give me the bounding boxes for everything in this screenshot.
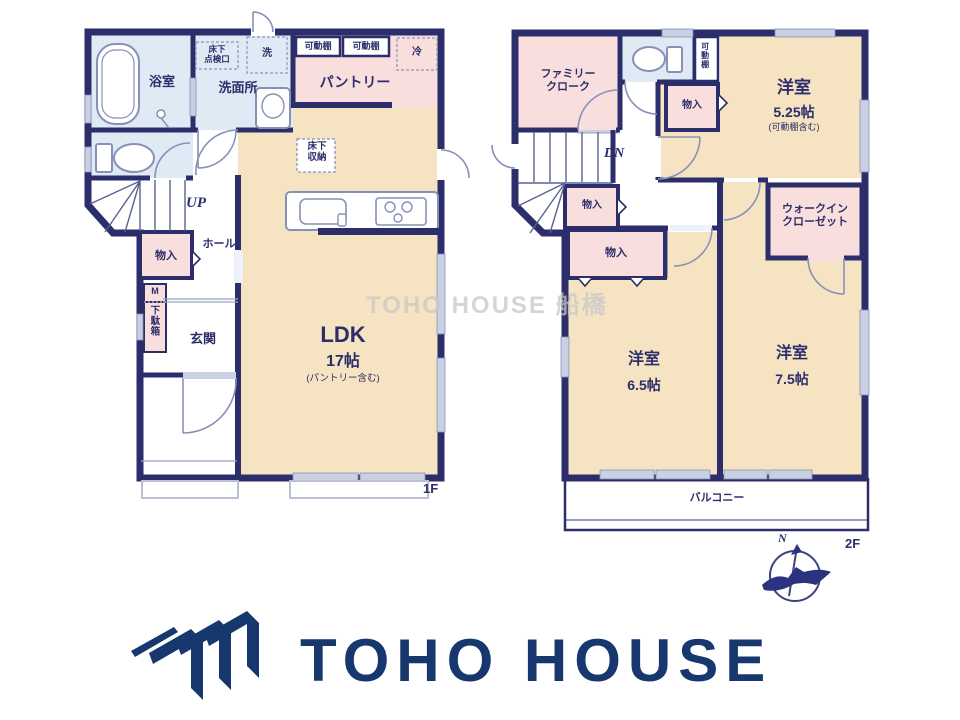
counter-base	[318, 228, 441, 235]
shower-icon	[157, 110, 165, 118]
toilet-tank-1f	[96, 144, 112, 172]
label-storage-1f: 物入	[144, 250, 188, 263]
door-gap	[655, 136, 661, 177]
toilet-door-2f	[625, 82, 657, 114]
window	[860, 310, 869, 395]
label-washroom: 洗面所	[208, 80, 268, 96]
logo-text: TOHO HOUSE	[300, 626, 772, 695]
door-sill	[670, 225, 712, 231]
label-floor-2f: 2F	[845, 536, 860, 552]
window	[860, 100, 869, 172]
compass	[762, 544, 831, 601]
label-shelf-2: 可動棚	[344, 41, 388, 52]
door-gap	[437, 149, 446, 180]
label-wic: ウォークインクローゼット	[772, 203, 858, 229]
label-meter: M	[146, 286, 164, 297]
door-gap	[808, 255, 844, 262]
window	[775, 29, 835, 37]
label-underfloor-hatch: 床下点検口	[196, 44, 238, 64]
compass-bird-icon	[762, 567, 831, 591]
window	[85, 147, 91, 172]
label-western-65: 洋室	[606, 350, 682, 369]
label-storage-2f-b: 物入	[580, 200, 604, 212]
toilet-bowl-2f	[633, 47, 665, 71]
toilet-tank-2f	[667, 47, 682, 72]
logo-house-icon	[131, 611, 259, 700]
label-shelf-1: 可動棚	[296, 41, 340, 52]
closet-door-marker	[618, 199, 626, 215]
label-western-75: 洋室	[754, 344, 830, 363]
label-western-525: 洋室	[756, 78, 832, 98]
label-pantry: パントリー	[310, 74, 400, 91]
label-underfloor-storage: 床下収納	[298, 141, 336, 164]
sliding-window	[724, 470, 767, 479]
label-entrance: 玄関	[178, 331, 228, 347]
door-gap	[251, 28, 275, 36]
label-dn: DN	[604, 146, 624, 163]
window	[561, 337, 569, 377]
label-shoe-cabinet: 下駄箱	[148, 305, 159, 337]
porch	[142, 481, 238, 498]
sliding-window	[769, 470, 812, 479]
label-hall: ホール	[196, 238, 242, 251]
window	[437, 358, 445, 432]
toilet-bowl-1f	[114, 144, 154, 172]
hall-opening	[234, 251, 243, 283]
terrace	[290, 481, 428, 498]
bathtub-inner	[102, 50, 134, 118]
label-balcony: バルコニー	[672, 492, 762, 505]
label-storage-2f-c: 物入	[604, 247, 628, 260]
label-western-525-note: (可動棚含む)	[746, 122, 842, 133]
burner	[394, 214, 402, 222]
label-compass-north: N	[778, 531, 787, 545]
label-fridge: 冷	[405, 47, 429, 59]
label-washer: 洗	[255, 48, 279, 60]
sliding-window	[656, 470, 710, 479]
bath-slide-door	[190, 78, 196, 116]
floor2-fixtures	[633, 47, 682, 72]
label-ldk: LDK	[300, 322, 386, 348]
label-ldk-size: 17帖	[300, 352, 386, 371]
window	[662, 29, 693, 37]
washbasin-bowl	[262, 94, 284, 118]
sliding-window	[600, 470, 654, 479]
label-ldk-note: (パントリー含む)	[288, 373, 398, 384]
floorplan-page: 浴室 床下点検口 洗 洗面所 可動棚 可動棚 冷 パントリー 床下収納 UP ホ…	[0, 0, 960, 720]
label-family-cloak: ファミリークローク	[530, 68, 606, 94]
label-bath: 浴室	[142, 74, 182, 90]
compass-arrowhead	[791, 544, 802, 555]
window	[137, 314, 143, 340]
label-western-65-size: 6.5帖	[606, 377, 682, 394]
burner	[402, 202, 412, 212]
window	[85, 95, 91, 123]
watermark: TOHO HOUSE 船橋	[366, 285, 608, 320]
label-shelf-2f: 可動棚	[700, 42, 710, 69]
door-gap	[511, 144, 519, 169]
label-western-75-size: 7.5帖	[754, 371, 830, 388]
burner	[385, 202, 395, 212]
label-floor-1f: 1F	[423, 481, 438, 497]
label-up: UP	[186, 194, 206, 212]
closet-door-marker	[193, 252, 200, 266]
kitchen-faucet	[338, 214, 346, 226]
label-storage-2f-a: 物入	[680, 100, 704, 112]
label-western-525-size: 5.25帖	[756, 104, 832, 121]
entrance-door	[183, 378, 236, 433]
